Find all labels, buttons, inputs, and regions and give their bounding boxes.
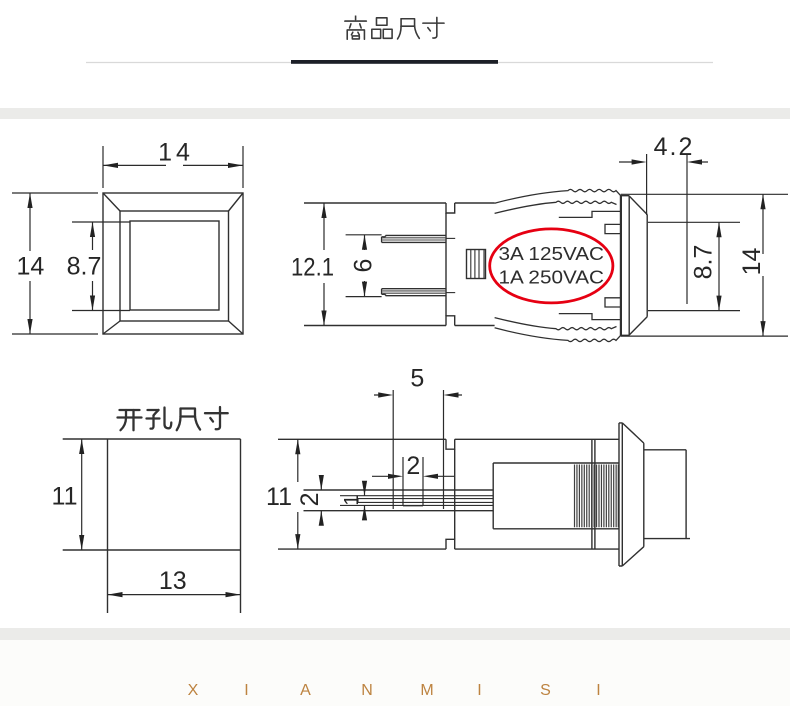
svg-text:I: I xyxy=(596,682,600,699)
svg-text:6: 6 xyxy=(350,259,378,273)
svg-text:5: 5 xyxy=(410,365,424,393)
svg-text:A: A xyxy=(300,682,311,699)
svg-text:X: X xyxy=(188,682,199,699)
svg-text:14: 14 xyxy=(158,139,194,167)
svg-text:2: 2 xyxy=(296,492,324,506)
svg-text:S: S xyxy=(540,682,551,699)
svg-text:8.7: 8.7 xyxy=(67,253,102,281)
svg-text:13: 13 xyxy=(159,567,187,595)
svg-text:11: 11 xyxy=(52,483,78,511)
svg-text:12.1: 12.1 xyxy=(291,254,334,282)
svg-text:1A 250VAC: 1A 250VAC xyxy=(499,266,605,287)
svg-text:M: M xyxy=(420,682,433,699)
svg-text:2: 2 xyxy=(406,452,420,480)
svg-text:I: I xyxy=(244,682,248,699)
svg-text:14: 14 xyxy=(738,248,766,276)
svg-text:I: I xyxy=(477,682,481,699)
svg-text:11: 11 xyxy=(266,483,292,511)
svg-text:4.2: 4.2 xyxy=(654,133,695,161)
svg-text:N: N xyxy=(361,682,373,699)
svg-text:1: 1 xyxy=(341,494,363,505)
svg-text:8.7: 8.7 xyxy=(690,245,718,280)
svg-text:3A 125VAC: 3A 125VAC xyxy=(499,243,605,264)
svg-text:14: 14 xyxy=(16,253,44,281)
